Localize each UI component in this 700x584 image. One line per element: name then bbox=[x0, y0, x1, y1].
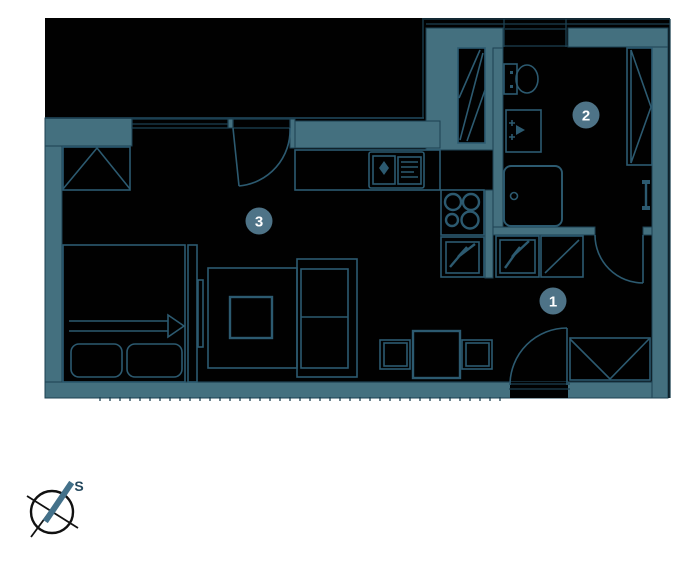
bathroom-south-wall bbox=[493, 227, 595, 235]
kitchen-back-wall bbox=[292, 121, 440, 148]
room-3-number: 3 bbox=[255, 214, 263, 231]
compass-label: S bbox=[74, 478, 83, 494]
bottom-dimension-ticks bbox=[100, 397, 500, 401]
room-badge-3: 3 bbox=[246, 208, 273, 235]
bottom-wall bbox=[45, 382, 668, 398]
kitchen-east-wall bbox=[485, 190, 493, 278]
bathroom-south-stub bbox=[643, 227, 652, 235]
left-wall bbox=[45, 118, 62, 398]
top-left-wall bbox=[45, 118, 132, 146]
compass: S bbox=[27, 478, 84, 537]
floor-plan-page: 1 2 3 S bbox=[0, 0, 700, 584]
right-wall bbox=[652, 30, 668, 398]
floor-plan: 1 2 3 S bbox=[0, 0, 700, 584]
room-badge-2: 2 bbox=[573, 102, 600, 129]
room-badge-1: 1 bbox=[540, 288, 567, 315]
room-2-number: 2 bbox=[582, 108, 590, 125]
top-wall-right-of-window bbox=[568, 28, 668, 47]
balcony-door-opening bbox=[233, 119, 290, 128]
bathroom-west-wall bbox=[493, 48, 503, 227]
installation-shaft bbox=[458, 48, 485, 143]
window-mullion bbox=[228, 119, 233, 128]
room-1-number: 1 bbox=[549, 294, 557, 311]
